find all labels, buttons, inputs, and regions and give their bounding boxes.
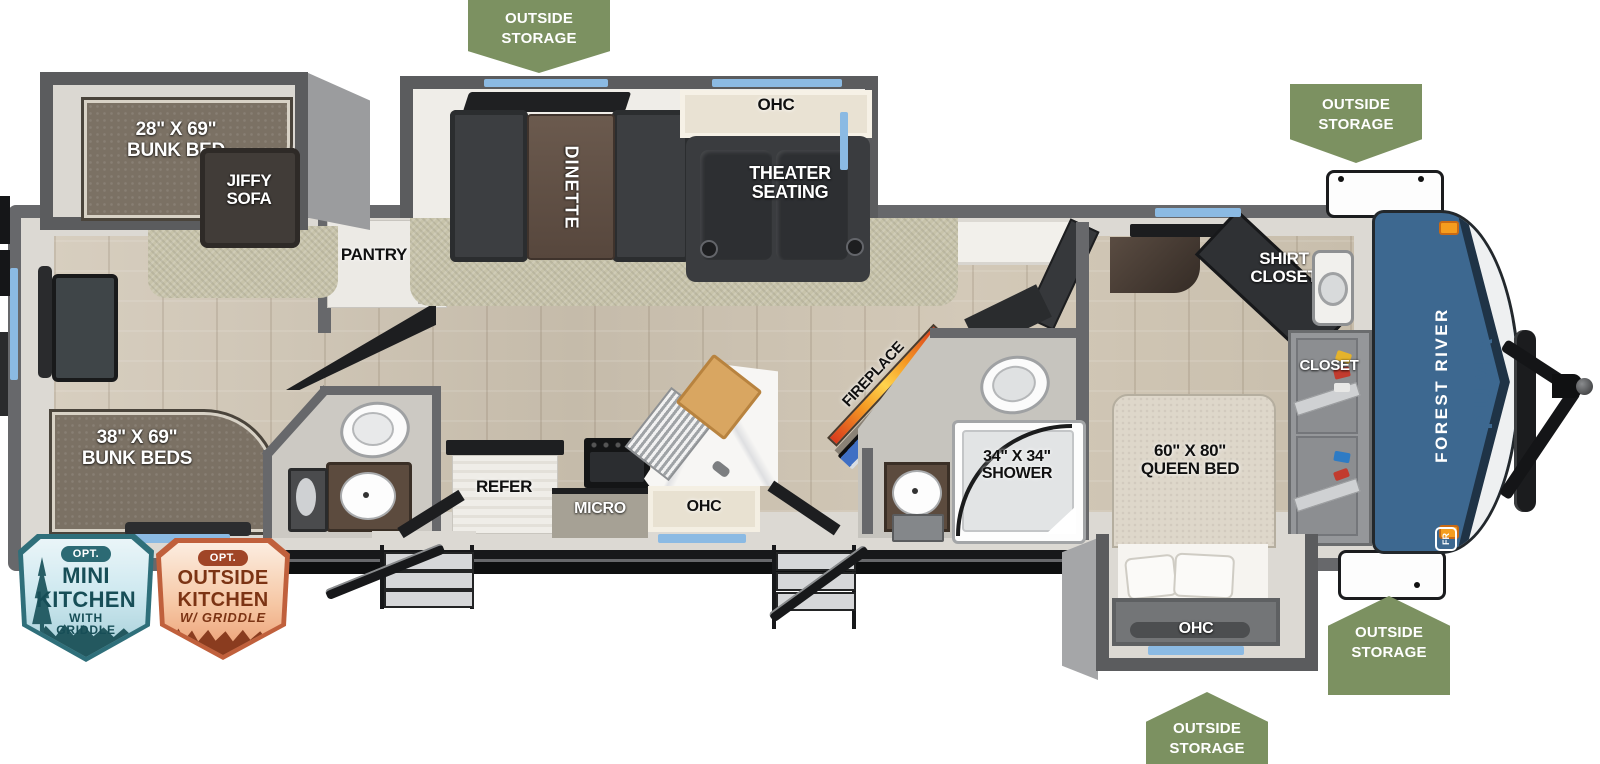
jiffy-sofa-label: JIFFYSOFA (204, 172, 294, 209)
living-slide-window-side (840, 112, 848, 170)
rear-bath-wall-left (263, 450, 272, 538)
propane-bolt-c (1414, 582, 1420, 588)
microwave-label: MICRO (554, 500, 646, 517)
kitchen-bottom-window (658, 534, 746, 543)
fr-logo-icon: FR (1435, 527, 1457, 551)
left-step-3 (384, 590, 474, 608)
tv-bracket (38, 266, 52, 378)
stove-inner (590, 452, 644, 482)
outside-kitchen-grass (161, 621, 285, 655)
mini-kitchen-badge-face: OPT. MINIKITCHEN WITHGRIDDLE (23, 539, 149, 657)
queen-bed-label: 60" X 80"QUEEN BED (1108, 442, 1272, 479)
outside-kitchen-title: OUTSIDEKITCHEN (161, 568, 285, 611)
rear-bumper-pipe (0, 332, 8, 416)
rear-bunk-beds-label: 38" X 69"BUNK BEDS (62, 428, 212, 469)
puma-wordmark: PUMA (1468, 302, 1498, 462)
entry-opening-left (372, 531, 476, 545)
refrigerator-top (446, 440, 564, 455)
propane-bolt-a (1338, 176, 1344, 182)
living-slide-window-right (712, 79, 842, 87)
bunk-slide-extrusion (306, 72, 370, 230)
forest-river-wordmark: FOREST RIVER (1432, 270, 1454, 500)
refrigerator-label: REFER (455, 478, 553, 496)
outside-kitchen-opt-pill: OPT. (198, 550, 248, 566)
mini-kitchen-title: MINIKITCHEN (23, 564, 149, 612)
outside-kitchen-badge-face: OPT. OUTSIDEKITCHEN W/ GRIDDLE (161, 543, 285, 655)
rear-bath-toilet-bowl (352, 412, 394, 446)
range-hood (463, 92, 631, 112)
living-slide-window-left (484, 79, 608, 87)
rear-bumper-lower (0, 250, 10, 296)
dresser (1110, 237, 1200, 293)
storage-badge-front-bottom: OUTSIDESTORAGE (1328, 596, 1450, 695)
pantry-label: PANTRY (330, 246, 418, 264)
outside-kitchen-subtitle: W/ GRIDDLE (161, 611, 285, 625)
main-bath-drain (912, 488, 918, 494)
theater-ohc-label: OHC (750, 96, 802, 114)
floorplan-diagram: 38" X 69"BUNK BEDS PANTRY REFER MICRO OH… (0, 0, 1600, 764)
dinette-bench-right (612, 110, 690, 262)
dinette-label: DINETTE (561, 145, 582, 229)
bedroom-slide-window (1148, 646, 1244, 655)
tv-screen (52, 274, 118, 382)
theater-cupholder-left (700, 240, 718, 258)
left-step-2 (384, 571, 474, 590)
main-bath-wall-top (930, 328, 1080, 338)
propane-bolt-b (1418, 176, 1424, 182)
pillow-right (1173, 552, 1235, 599)
theater-cupholder-right (846, 238, 864, 256)
dinette-bench-left (450, 110, 528, 262)
rear-bath-drain (363, 492, 369, 498)
mini-kitchen-opt-pill: OPT. (61, 546, 111, 562)
storage-badge-bedroom: OUTSIDESTORAGE (1146, 692, 1268, 764)
mini-kitchen-badge: OPT. MINIKITCHEN WITHGRIDDLE (18, 534, 154, 662)
main-bath-wall-left (862, 448, 873, 534)
front-closet-label: CLOSET (1294, 358, 1364, 374)
bedroom-ohc-label: OHC (1168, 620, 1224, 637)
shower-label: 34" X 34"SHOWER (962, 448, 1072, 483)
marker-light-top (1439, 221, 1459, 235)
pillow-left (1124, 554, 1178, 601)
bedroom-window-top (1155, 208, 1241, 217)
main-bath-hamper (892, 514, 944, 542)
rear-wall-window (10, 268, 18, 380)
kitchen-ohc-label: OHC (650, 498, 758, 515)
entry-opening-middle (766, 531, 858, 545)
mini-kitchen-subtitle: WITHGRIDDLE (23, 612, 149, 638)
washer-door (1318, 272, 1348, 306)
hitch-ball (1576, 378, 1593, 395)
rear-bumper-upper (0, 196, 10, 244)
propane-cover-bottom (1338, 550, 1446, 600)
closet-item-white (1334, 383, 1350, 392)
theater-seating-label: THEATERSEATING (722, 164, 858, 203)
outside-kitchen-badge: OPT. OUTSIDEKITCHEN W/ GRIDDLE (156, 538, 290, 660)
bedroom-slide-extrusion (1062, 538, 1098, 680)
dinette-table: DINETTE (527, 114, 615, 260)
rear-bath-wall-top (320, 386, 441, 395)
storage-badge-front-top: OUTSIDESTORAGE (1290, 84, 1422, 163)
rear-bath-mirror-glass (296, 478, 316, 516)
storage-badge-top-left: OUTSIDESTORAGE (468, 0, 610, 73)
